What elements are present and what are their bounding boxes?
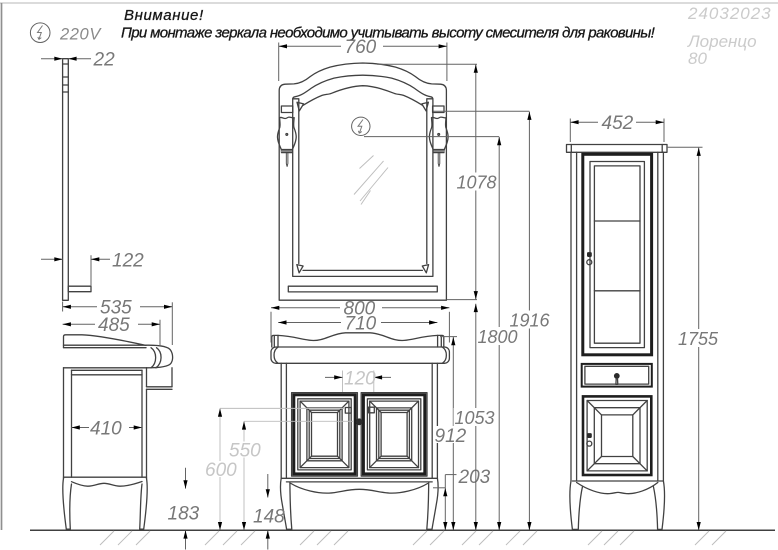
svg-text:485: 485 xyxy=(98,315,130,336)
svg-text:1053: 1053 xyxy=(455,408,495,428)
svg-text:22: 22 xyxy=(93,50,116,71)
svg-text:120: 120 xyxy=(344,369,376,390)
svg-text:1916: 1916 xyxy=(510,311,551,331)
svg-text:1078: 1078 xyxy=(457,173,497,193)
svg-text:220V: 220V xyxy=(59,26,102,44)
svg-text:203: 203 xyxy=(458,467,491,488)
svg-text:При монтаже зеркала необходимо: При монтаже зеркала необходимо учитывать… xyxy=(121,25,656,42)
svg-text:410: 410 xyxy=(90,419,122,440)
svg-text:80: 80 xyxy=(688,49,707,68)
svg-text:122: 122 xyxy=(112,251,144,272)
svg-text:Внимание!: Внимание! xyxy=(124,7,204,24)
svg-text:600: 600 xyxy=(205,460,237,481)
svg-text:452: 452 xyxy=(602,113,634,134)
svg-text:912: 912 xyxy=(435,426,467,447)
svg-text:1755: 1755 xyxy=(678,329,719,349)
svg-text:183: 183 xyxy=(168,504,200,525)
svg-text:550: 550 xyxy=(229,441,261,462)
svg-text:148: 148 xyxy=(253,507,285,528)
svg-text:24032023: 24032023 xyxy=(687,4,772,23)
svg-text:760: 760 xyxy=(345,37,377,58)
svg-text:710: 710 xyxy=(345,314,377,335)
